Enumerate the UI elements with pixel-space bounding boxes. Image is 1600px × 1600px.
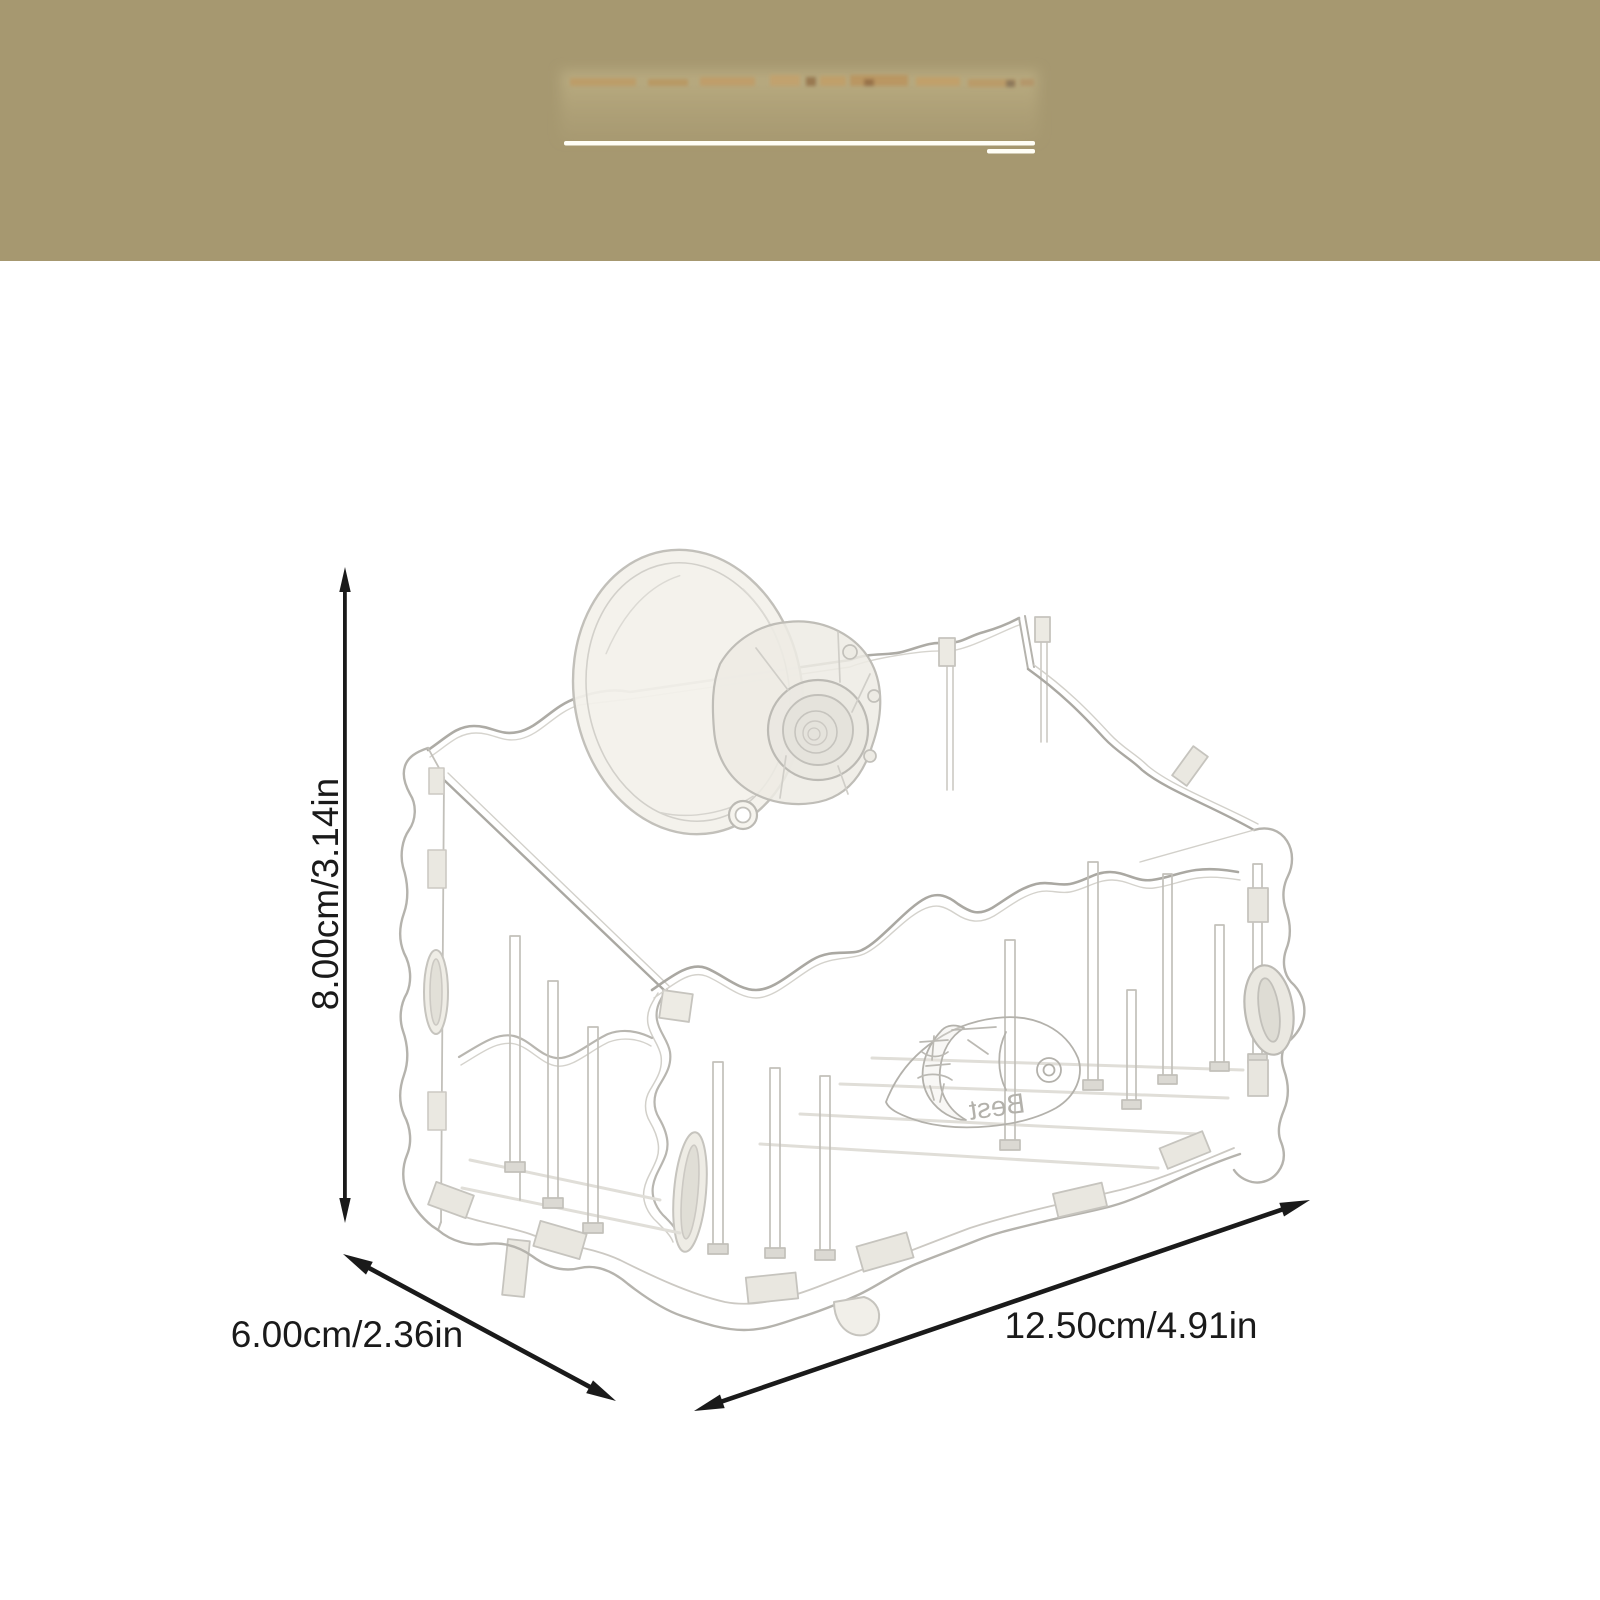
svg-text:6.00cm/2.36in: 6.00cm/2.36in bbox=[231, 1314, 463, 1355]
svg-text:12.50cm/4.91in: 12.50cm/4.91in bbox=[1004, 1305, 1257, 1346]
svg-text:8.00cm/3.14in: 8.00cm/3.14in bbox=[305, 778, 346, 1010]
